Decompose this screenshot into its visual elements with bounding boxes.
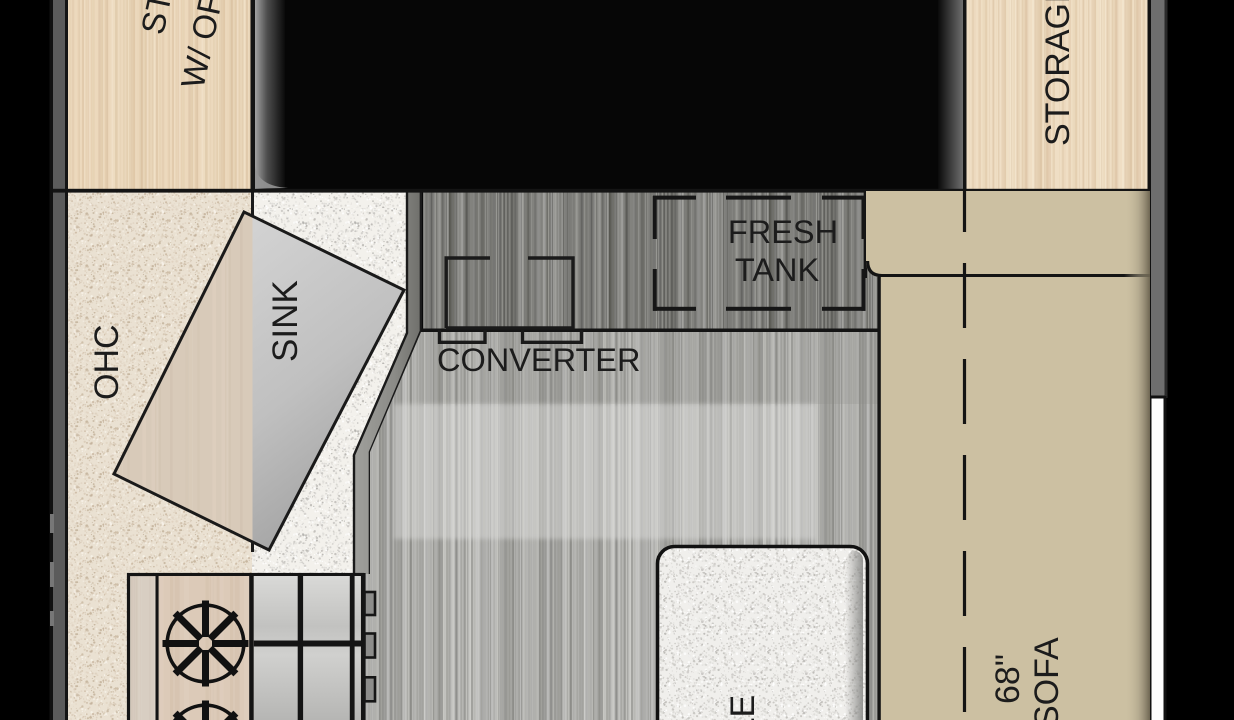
svg-text:SINK: SINK bbox=[266, 280, 305, 362]
svg-text:OHC: OHC bbox=[88, 324, 126, 400]
svg-text:FRESH: FRESH bbox=[728, 214, 838, 250]
svg-text:STORAGE: STORAGE bbox=[1039, 0, 1077, 146]
svg-text:CONVERTER: CONVERTER bbox=[437, 342, 640, 378]
svg-text:68": 68" bbox=[989, 654, 1027, 704]
svg-text:TANK: TANK bbox=[735, 252, 820, 288]
svg-text:SOFA: SOFA bbox=[1028, 637, 1066, 720]
svg-text:TABLE: TABLE bbox=[724, 695, 762, 720]
